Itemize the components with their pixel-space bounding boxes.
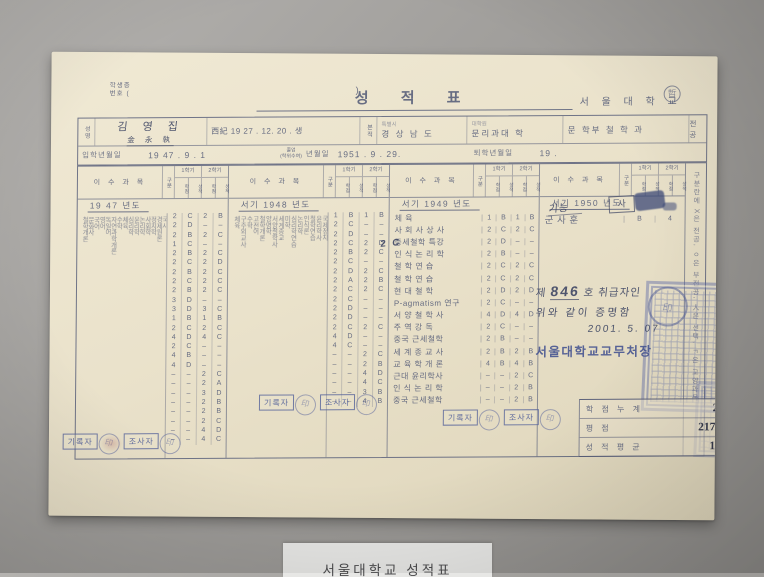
- section-body: 철학개론문화사국어영어독일어자연과학개론수학체육심리학윤리학논리학사회학정치학경…: [76, 213, 228, 459]
- course-header: 이 수 과 목: [540, 164, 619, 196]
- certify-issuer: 서울대학교교무처장: [535, 340, 717, 360]
- grade-cells: 2B2B: [480, 348, 537, 355]
- student-id-note-line2: 번호 (: [110, 90, 131, 98]
- grade-cell: B: [523, 384, 537, 391]
- grade-cell: –: [524, 238, 538, 245]
- grade-cells: 2C2C: [482, 226, 539, 233]
- course-row: 체 육1B1B: [390, 211, 539, 224]
- grade-cell: 2: [167, 260, 181, 269]
- grade-cell: 4: [167, 334, 181, 343]
- grade-cells: ––2B: [480, 397, 537, 404]
- grade-cell: 2: [328, 222, 342, 231]
- semester-subheaders: 학점성적: [336, 177, 362, 197]
- grade-cells: 2D––: [328, 231, 388, 241]
- grade-cell: C: [181, 259, 196, 268]
- grade-cell: 2: [357, 352, 372, 361]
- grade-cell: 2: [328, 259, 342, 268]
- grade-cell: –: [180, 371, 195, 380]
- grade-cell: C: [210, 436, 225, 445]
- grade-cell: 2: [482, 263, 495, 270]
- grade-cell: 4: [327, 342, 341, 351]
- grade-cell: 2: [510, 263, 524, 270]
- grade-cell: –: [196, 343, 211, 352]
- grade-cell: 2: [328, 305, 342, 314]
- grade-cell: B: [211, 399, 226, 408]
- grade-cell: 2: [357, 361, 372, 370]
- grade-cell: C: [495, 263, 509, 270]
- semester-label: 2학기: [363, 165, 389, 177]
- graduation-label-rest: 년월일: [302, 148, 334, 159]
- grade-cell: 3: [196, 390, 211, 399]
- grade-cell: 2: [195, 417, 210, 426]
- grade-cell: B: [212, 213, 227, 222]
- grade-cell: –: [196, 297, 211, 306]
- certification-block: 제 846 호 취급자인 위와 같이 증명함 2001. 5. 07 서울대학교…: [535, 282, 717, 360]
- checker-stamp: 조사자印: [124, 433, 159, 449]
- grade-cells: 2C2C: [328, 324, 388, 334]
- category-header: 구분: [619, 164, 631, 196]
- grade-cell: D: [342, 268, 357, 277]
- grade-cell: –: [341, 379, 356, 388]
- transcript-paper: 학생증 번호 ( ) 성 적 표 서 울 대 학 교 哲 성명 김 영 집 金 …: [48, 52, 717, 521]
- course-row: 철 학 연 습2C2C: [389, 272, 538, 285]
- course-row: 현 대 철 학2D2D: [389, 284, 538, 297]
- grade-subheader: 성적: [375, 177, 389, 197]
- college-cell: 대학원 문리과대 학: [466, 116, 562, 144]
- dept-value: 문 학부 철 학 과: [568, 123, 689, 136]
- grade-cells: 2B––: [481, 250, 538, 257]
- grade-cell: C: [496, 226, 510, 233]
- grade-cells: 2C2C: [167, 278, 227, 288]
- grade-cell: 1: [167, 315, 181, 324]
- grade-cell: 2: [167, 232, 181, 241]
- grade-cell: B: [495, 336, 509, 343]
- grade-subheader: 성적: [498, 176, 512, 196]
- grade-cell: –: [180, 399, 195, 408]
- graduation-label-bottom: (학위수여): [280, 153, 302, 159]
- grade-cell: –: [358, 259, 373, 268]
- grade-cells: 4D4C: [167, 334, 227, 344]
- grade-cell: –: [509, 336, 523, 343]
- grade-cell: –: [166, 371, 180, 380]
- grade-cell: 2: [481, 348, 494, 355]
- grade-cell: C: [524, 275, 538, 282]
- grade-cell: –: [166, 380, 180, 389]
- grade-cell: –: [180, 418, 195, 427]
- recorder-stamp: 기록자印: [63, 433, 98, 449]
- grade-cell: B: [523, 360, 537, 367]
- grade-cell: –: [212, 241, 227, 250]
- credit-subheader: 학점: [336, 177, 349, 197]
- certificate-number-line: 제 846 호 취급자인: [535, 282, 718, 300]
- recorder-stamp: 기록자印: [259, 394, 294, 410]
- grade-cells: ––2C: [166, 417, 226, 427]
- exhibit-caption-text: 서울대학교 성적표: [283, 559, 492, 577]
- course-name: 세 계 종 교 사: [388, 346, 480, 357]
- grade-cell: 2: [197, 250, 212, 259]
- grade-cell: –: [211, 352, 226, 361]
- grade-cells: 2D2D: [481, 287, 538, 294]
- grade-subheader: 성적: [348, 177, 362, 197]
- grade-cell: B: [211, 315, 226, 324]
- grade-cell: B: [523, 397, 537, 404]
- grade-cell: –: [524, 250, 538, 257]
- grade-cell: –: [357, 333, 372, 342]
- course-name: 주 역 강 독: [389, 322, 481, 333]
- course-row: 교 육 학 개 론4B4B: [388, 357, 537, 370]
- name-cell: 김 영 집 金 永 執: [94, 118, 206, 146]
- grade-cell: 2: [509, 348, 523, 355]
- grade-cell: C: [495, 299, 509, 306]
- grade-cell: 2: [196, 278, 211, 287]
- grade-cell: 2: [195, 399, 210, 408]
- grade-cell: –: [509, 299, 523, 306]
- grade-cell: 2: [509, 287, 523, 294]
- grade-cell: 2: [482, 275, 495, 282]
- course-header: 이 수 과 목: [390, 165, 473, 197]
- grade-cells: 4D4D: [481, 311, 538, 318]
- grade-cell: –: [373, 296, 388, 305]
- grade-cell: D: [211, 389, 226, 398]
- grade-cells: ––2B: [166, 408, 226, 418]
- grade-cell: –: [481, 372, 494, 379]
- grade-subheader: 성적: [214, 178, 228, 198]
- grade-cell: B: [181, 315, 196, 324]
- certificate-no-suffix: 호 취급자인: [583, 287, 642, 299]
- grade-cell: 2: [510, 226, 524, 233]
- grade-cell: 4: [195, 436, 210, 445]
- category-header: 구분: [473, 164, 485, 196]
- grade-cells: 2C2B: [168, 213, 228, 223]
- student-id-note: 학생증 번호 (: [110, 82, 131, 97]
- grade-cell: C: [495, 275, 509, 282]
- grade-cell: 2: [197, 269, 212, 278]
- grade-cell: D: [343, 231, 358, 240]
- section-column-headers: 이 수 과 목구분1학기학점성적2학기학점성적: [78, 166, 228, 200]
- semester-header-2: 2학기학점성적: [362, 165, 389, 197]
- grade-cell: 2: [328, 277, 342, 286]
- grade-cell: B: [496, 250, 510, 257]
- grade-cell: B: [181, 250, 196, 259]
- course-name: 인 식 논 리 학: [388, 383, 480, 394]
- grade-cell: 2: [197, 231, 212, 240]
- grade-cell: C: [524, 263, 538, 270]
- grade-cell: –: [197, 222, 212, 231]
- grade-cell: 2: [328, 314, 342, 323]
- grade-cell: 1: [510, 214, 524, 221]
- grade-cell: C: [212, 250, 227, 259]
- semester-header-1: 1학기학점성적: [335, 165, 362, 197]
- grade-cell: C: [181, 343, 196, 352]
- grade-cells: 2B2C: [167, 231, 227, 241]
- grade-cell: 1: [358, 212, 373, 221]
- college-value: 문리과대 학: [472, 127, 563, 139]
- grade-cell: C: [211, 324, 226, 333]
- grade-cell: 4: [481, 360, 494, 367]
- grade-cell: D: [210, 427, 225, 436]
- grade-cell: C: [524, 226, 538, 233]
- grade-cells: 2C––: [481, 323, 538, 330]
- grade-cell: C: [372, 324, 387, 333]
- bonjeok-label: 본적: [363, 123, 373, 139]
- grade-cell: 1: [329, 212, 343, 221]
- grade-cell: 4: [357, 379, 372, 388]
- grade-cell: 2: [167, 269, 181, 278]
- grade-cell: 2: [357, 324, 372, 333]
- grade-cell: D: [495, 311, 509, 318]
- grade-cell: –: [357, 305, 372, 314]
- stamp-group-2: 기록자印조사자印: [259, 394, 355, 411]
- grade-cell: C: [342, 296, 357, 305]
- semester-label: 2학기: [202, 166, 228, 178]
- name-label: 성명: [81, 124, 91, 140]
- grade-cells: 2B2C: [167, 269, 227, 279]
- grade-cell: C: [372, 379, 387, 388]
- category-header: 구분: [162, 166, 174, 198]
- grade-cell: 2: [482, 238, 495, 245]
- year-label: 서기 1948 년도: [229, 198, 389, 213]
- certify-statement: 위와 같이 증명함: [535, 304, 718, 320]
- transcript-content: 학생증 번호 ( ) 성 적 표 서 울 대 학 교 哲 성명 김 영 집 金 …: [48, 52, 717, 520]
- grade-cell: –: [197, 241, 212, 250]
- bonjeok-cell: 특별시 경 상 남 도: [376, 117, 466, 144]
- grade-cell: D: [181, 362, 196, 371]
- grade-cell: C: [182, 213, 197, 222]
- grade-cell: B: [496, 214, 510, 221]
- grade-cell: C: [343, 240, 358, 249]
- major-label: 전공: [689, 118, 698, 140]
- grade-cell: 4: [166, 362, 180, 371]
- year-label-text: 19 47 년도: [88, 200, 149, 212]
- credit-subheader: 학점: [175, 178, 188, 198]
- section-body: 체육구주외교사수학고전어철학개론양명학서양철학사세계종교미학심리학연습논리학인식…: [227, 212, 389, 458]
- grade-cells: B4: [624, 215, 685, 222]
- grade-cell: D: [181, 334, 196, 343]
- student-info-row2: 입학년월일 19 47 . 9 . 1 졸업 (학위수여) 년월일 1951 .…: [78, 143, 706, 163]
- dark-seal-blob-small: [663, 202, 677, 210]
- semester-label: 1학기: [486, 164, 512, 176]
- course-name: 중국 근세철학: [388, 395, 480, 406]
- grade-cell: –: [341, 370, 356, 379]
- section-column-headers: 이 수 과 목구분1학기학점성적2학기학점성적: [390, 164, 539, 198]
- grades-column: 1B1B2C––2D––2C2D2B2C2C––2D2C2A2B2C2C2C––…: [326, 212, 389, 457]
- grade-cells: 2C2D: [167, 259, 227, 269]
- bonjeok-label-cell: 본적: [359, 117, 376, 144]
- summary-row-credits: 학 점 누 계 213: [580, 399, 718, 419]
- grade-cell: 2: [328, 324, 342, 333]
- grade-cell: D: [495, 287, 509, 294]
- year-label-text: 서기 1949 년도: [400, 198, 480, 210]
- grade-cells: 2D––: [328, 305, 388, 315]
- grade-cell: C: [212, 306, 227, 315]
- stamp-group-3: 기록자印조사자印: [443, 409, 539, 426]
- course-header: 이 수 과 목: [78, 166, 162, 198]
- course-name: 철 학 연 습: [389, 273, 481, 284]
- grade-cell: –: [372, 333, 387, 342]
- grade-cell: –: [494, 397, 508, 404]
- course-row: 인 식 논 리 학2B––: [389, 248, 538, 261]
- grade-cell: C: [372, 351, 387, 360]
- withdrawal-value: 19 .: [536, 147, 707, 158]
- grade-cells: 2C2C: [481, 275, 538, 282]
- grade-cell: –: [509, 324, 523, 331]
- grade-cell: 2: [328, 296, 342, 305]
- grade-cell: 4: [509, 311, 523, 318]
- grade-cell: C: [373, 249, 388, 258]
- grade-cell: –: [166, 399, 180, 408]
- grade-cells: 2C2C: [481, 263, 538, 270]
- grade-cell: 2: [195, 408, 210, 417]
- grade-cells: 1B1B: [167, 315, 227, 325]
- grade-cells: ––2B: [327, 361, 387, 371]
- name-label-cell: 성명: [78, 119, 94, 146]
- grade-cell: C: [212, 231, 227, 240]
- grade-cell: –: [327, 380, 341, 389]
- grade-cell: B: [372, 361, 387, 370]
- semester-label: 1학기: [336, 165, 362, 177]
- course-name: 체 육: [390, 212, 482, 223]
- grade-cells: 2C2C: [328, 286, 388, 296]
- grade-cell: 2: [357, 286, 372, 295]
- year-label: 19 47 년도: [78, 199, 228, 214]
- grade-cell: 3: [167, 306, 181, 315]
- grade-cell: –: [358, 221, 373, 230]
- grade-cell: C: [523, 372, 537, 379]
- course-name: 사 회 사 상 사: [389, 224, 481, 235]
- grade-cell: –: [494, 372, 508, 379]
- grade-cell: D: [212, 259, 227, 268]
- semester-header-1: 1학기학점성적: [485, 164, 512, 196]
- grade-cell: B: [373, 277, 388, 286]
- grade-cell: –: [342, 361, 357, 370]
- certificate-no: 846: [550, 283, 581, 300]
- exhibit-caption-card: 서울대학교 성적표: [283, 543, 492, 577]
- grade-cell: –: [180, 380, 195, 389]
- grade-cell: 4: [166, 353, 180, 362]
- grade-cell: 2: [167, 222, 181, 231]
- grade-cell: C: [211, 334, 226, 343]
- grade-cell: B: [181, 287, 196, 296]
- grade-cell: 2: [196, 371, 211, 380]
- grade-cell: C: [495, 324, 509, 331]
- grade-cell: 4: [357, 370, 372, 379]
- grade-cell: –: [211, 362, 226, 371]
- course-name: 인 식 논 리 학: [389, 249, 481, 260]
- grade-cell: D: [342, 333, 357, 342]
- birthdate-value: 西紀 19 27 . 12. 20 . 생: [211, 125, 360, 137]
- grade-cell: D: [372, 370, 387, 379]
- grade-cell: 1: [167, 241, 181, 250]
- grade-cell: –: [358, 231, 373, 240]
- name-hanja: 金 永 執: [127, 134, 175, 146]
- grade-cell: –: [510, 250, 524, 257]
- course-name: 서 양 철 학 사: [389, 310, 481, 321]
- grade-cell: C: [182, 241, 197, 250]
- graduation-value: 1951 . 9 . 29.: [334, 148, 470, 159]
- grade-cells: 2C––: [481, 299, 538, 306]
- grade-cell: C: [373, 286, 388, 295]
- grade-cell: B: [181, 269, 196, 278]
- grade-cells: 1B1B: [482, 214, 539, 221]
- grade-cell: –: [166, 390, 180, 399]
- semester-header-2: 2학기학점성적: [201, 166, 228, 198]
- semester-label: 2학기: [513, 164, 539, 176]
- grade-cell: 2: [357, 277, 372, 286]
- grades-column: 2C2B2D––2B2C1C––2B2C2C2D2B2C2C2C2B2C3D––…: [165, 213, 228, 458]
- summary-table: 학 점 누 계 213 평 점 217.00 성 적 평 균 1.07: [578, 398, 717, 457]
- grade-cell: D: [496, 238, 510, 245]
- grade-cells: 2C––: [166, 343, 226, 353]
- course-name: 교 육 학 개 론: [388, 358, 480, 369]
- grade-cells: 2D––: [328, 314, 388, 324]
- vertical-course-names: 체육구주외교사수학고전어철학개론양명학서양철학사세계종교미학심리학연습논리학인식…: [227, 212, 328, 458]
- checker-stamp: 조사자印: [320, 394, 355, 410]
- grade-cells: 2B2C: [167, 287, 227, 297]
- grade-cell: –: [180, 427, 195, 436]
- stamp-group-1: 기록자印조사자印: [63, 433, 159, 450]
- grade-cell: C: [342, 287, 357, 296]
- summary-row-average: 성 적 평 균 1.07: [580, 437, 718, 456]
- grade-cell: C: [373, 268, 388, 277]
- grade-subheader: 성적: [187, 178, 201, 198]
- grade-cell: 4: [195, 427, 210, 436]
- grade-cell: 3: [167, 297, 181, 306]
- section-column-headers: 이 수 과 목구분1학기학점성적2학기학점성적: [229, 165, 389, 199]
- grade-cells: 2D––: [481, 238, 538, 245]
- course-row: 중세철학 특강2D––: [389, 236, 538, 249]
- checker-mini-box: 사: [608, 195, 635, 213]
- grade-cell: –: [510, 238, 524, 245]
- vertical-course-names: 철학개론문화사국어영어독일어자연과학개론수학체육심리학윤리학논리학사회학정치학경…: [76, 213, 167, 458]
- semester-subheaders: 학점성적: [175, 178, 201, 198]
- course-row: 인 식 논 리 학––2B: [388, 382, 537, 395]
- credit-subheader: 학점: [486, 176, 499, 196]
- year-label-text: 서기 1948 년도: [239, 199, 319, 211]
- course-row: P-agmatism 연구2C––: [389, 297, 538, 310]
- grade-cell: B: [342, 249, 357, 258]
- grade-cell: –: [327, 361, 341, 370]
- grade-cells: ––2B: [480, 384, 537, 391]
- grade-cell: D: [182, 222, 197, 231]
- grade-cell: –: [196, 362, 211, 371]
- credit-subheader: 학점: [202, 178, 215, 198]
- grade-subheader: 성적: [671, 175, 685, 195]
- course-name: 철 학 연 습: [389, 261, 481, 272]
- grade-cell: 2: [168, 213, 182, 222]
- grade-cell: –: [342, 352, 357, 361]
- admission-label: 입학년월일: [78, 149, 144, 160]
- course-name: P-agmatism 연구: [389, 297, 481, 308]
- grade-cells: 4C––: [327, 342, 387, 352]
- grade-cell: –: [180, 436, 195, 445]
- grade-cells: 2C––: [328, 221, 388, 231]
- grade-cell: –: [166, 418, 180, 427]
- grade-cell: 2: [328, 249, 342, 258]
- checker-stamp: 조사자印: [504, 409, 539, 425]
- credit-subheader: 학점: [513, 176, 526, 196]
- student-id-note-line1: 학생증: [110, 82, 131, 90]
- grade-cell: –: [166, 408, 180, 417]
- grade-cell: 2: [167, 250, 181, 259]
- grade-cell: 2: [482, 287, 495, 294]
- grade-cell: 4: [328, 333, 342, 342]
- grade-cell: 4: [196, 334, 211, 343]
- summary-label-points: 평 점: [580, 422, 668, 433]
- semester-subheaders: 학점성적: [486, 176, 512, 196]
- grade-cells: 4B––: [166, 352, 226, 362]
- grade-cell: C: [342, 342, 357, 351]
- handwritten-note-1950: 기능: [548, 198, 584, 217]
